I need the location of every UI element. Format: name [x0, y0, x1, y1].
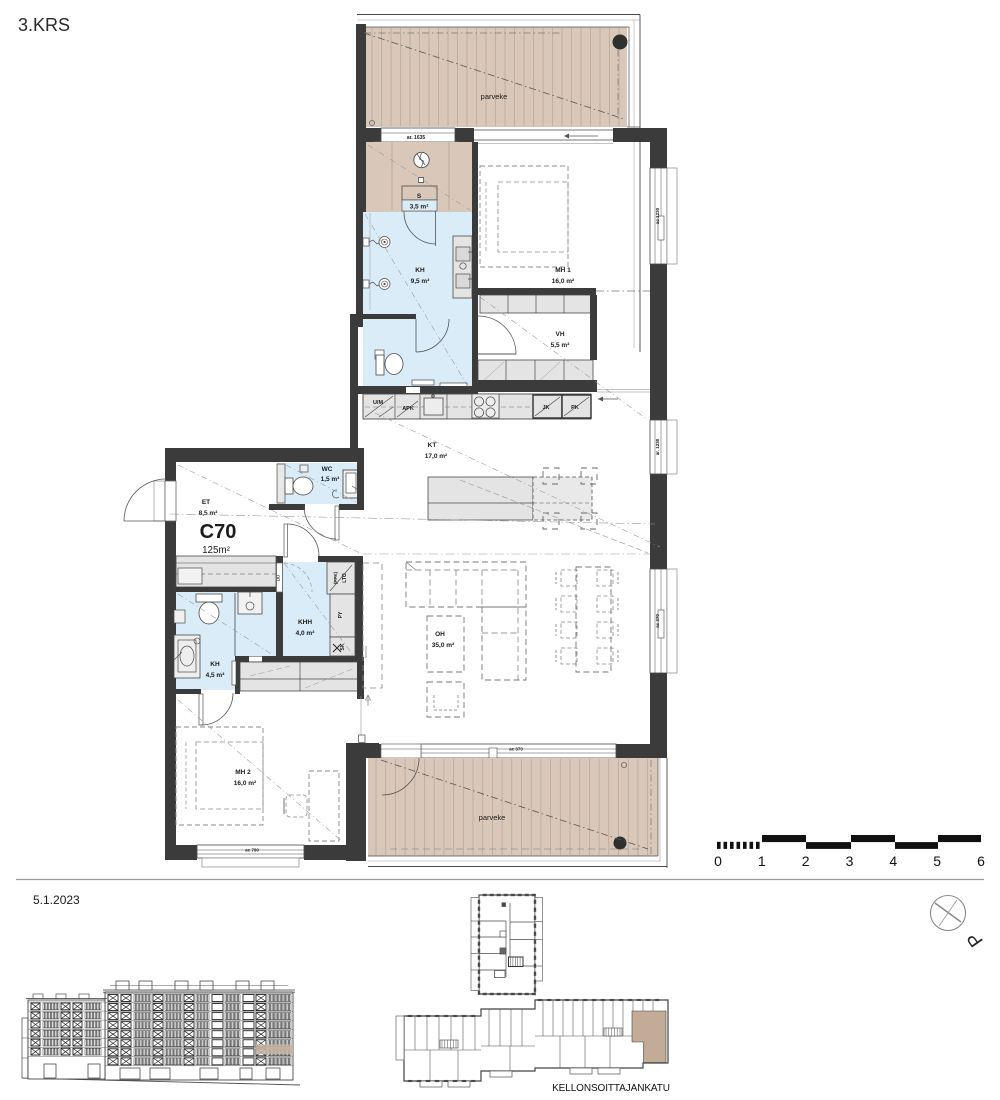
- svg-text:parveke: parveke: [481, 92, 508, 101]
- svg-text:3,5 m²: 3,5 m²: [410, 204, 430, 211]
- svg-text:(PPK): (PPK): [333, 571, 338, 584]
- svg-text:KH: KH: [415, 267, 425, 274]
- svg-text:5.1.2023: 5.1.2023: [33, 893, 80, 907]
- svg-text:PK: PK: [571, 405, 579, 411]
- svg-text:4,5 m²: 4,5 m²: [206, 672, 226, 679]
- svg-text:ac 700: ac 700: [245, 848, 259, 853]
- svg-text:125m²: 125m²: [202, 545, 231, 556]
- svg-text:35,0 m²: 35,0 m²: [432, 642, 455, 649]
- svg-text:MH 1: MH 1: [555, 267, 571, 274]
- svg-text:VH: VH: [555, 331, 564, 338]
- svg-text:LTO: LTO: [342, 573, 348, 583]
- svg-text:OH: OH: [435, 631, 445, 638]
- svg-text:JK: JK: [542, 405, 549, 411]
- svg-text:KH: KH: [210, 661, 220, 668]
- svg-text:ar. 1635: ar. 1635: [407, 135, 426, 141]
- svg-text:5: 5: [933, 853, 941, 869]
- svg-text:APK: APK: [402, 406, 414, 412]
- svg-text:PY: PY: [338, 611, 344, 618]
- svg-text:6: 6: [977, 853, 985, 869]
- svg-text:WC: WC: [322, 466, 333, 473]
- svg-text:KT: KT: [428, 442, 437, 449]
- svg-text:ac 370: ac 370: [655, 614, 660, 628]
- svg-text:0: 0: [714, 853, 722, 869]
- svg-text:4,0 m²: 4,0 m²: [296, 630, 316, 637]
- svg-text:ET: ET: [202, 499, 210, 506]
- svg-text:ac 1230: ac 1230: [655, 207, 660, 224]
- svg-text:17,0 m²: 17,0 m²: [425, 453, 448, 460]
- svg-text:C70: C70: [200, 521, 237, 543]
- svg-text:parveke: parveke: [479, 813, 506, 822]
- svg-text:ac 370: ac 370: [509, 747, 523, 752]
- svg-text:3.KRS: 3.KRS: [18, 15, 70, 35]
- svg-text:8,5 m²: 8,5 m²: [199, 510, 219, 517]
- svg-text:LIU: LIU: [277, 575, 281, 581]
- svg-text:4: 4: [889, 853, 897, 869]
- svg-text:U/M: U/M: [373, 400, 384, 406]
- svg-text:3: 3: [846, 853, 854, 869]
- svg-text:1: 1: [758, 853, 766, 869]
- svg-text:16,0 m²: 16,0 m²: [234, 780, 257, 787]
- svg-text:P: P: [963, 928, 987, 950]
- svg-text:MH 2: MH 2: [235, 769, 251, 776]
- svg-text:KHH: KHH: [298, 619, 312, 626]
- svg-text:1,5 m²: 1,5 m²: [321, 476, 341, 483]
- svg-text:9,5 m²: 9,5 m²: [411, 278, 431, 285]
- svg-text:16,0 m²: 16,0 m²: [552, 278, 575, 285]
- svg-text:S: S: [417, 193, 422, 200]
- svg-text:5,5 m²: 5,5 m²: [551, 342, 571, 349]
- svg-text:2: 2: [802, 853, 810, 869]
- svg-text:KELLONSOITTAJANKATU: KELLONSOITTAJANKATU: [552, 1083, 670, 1094]
- svg-text:ar. 1230: ar. 1230: [655, 438, 660, 455]
